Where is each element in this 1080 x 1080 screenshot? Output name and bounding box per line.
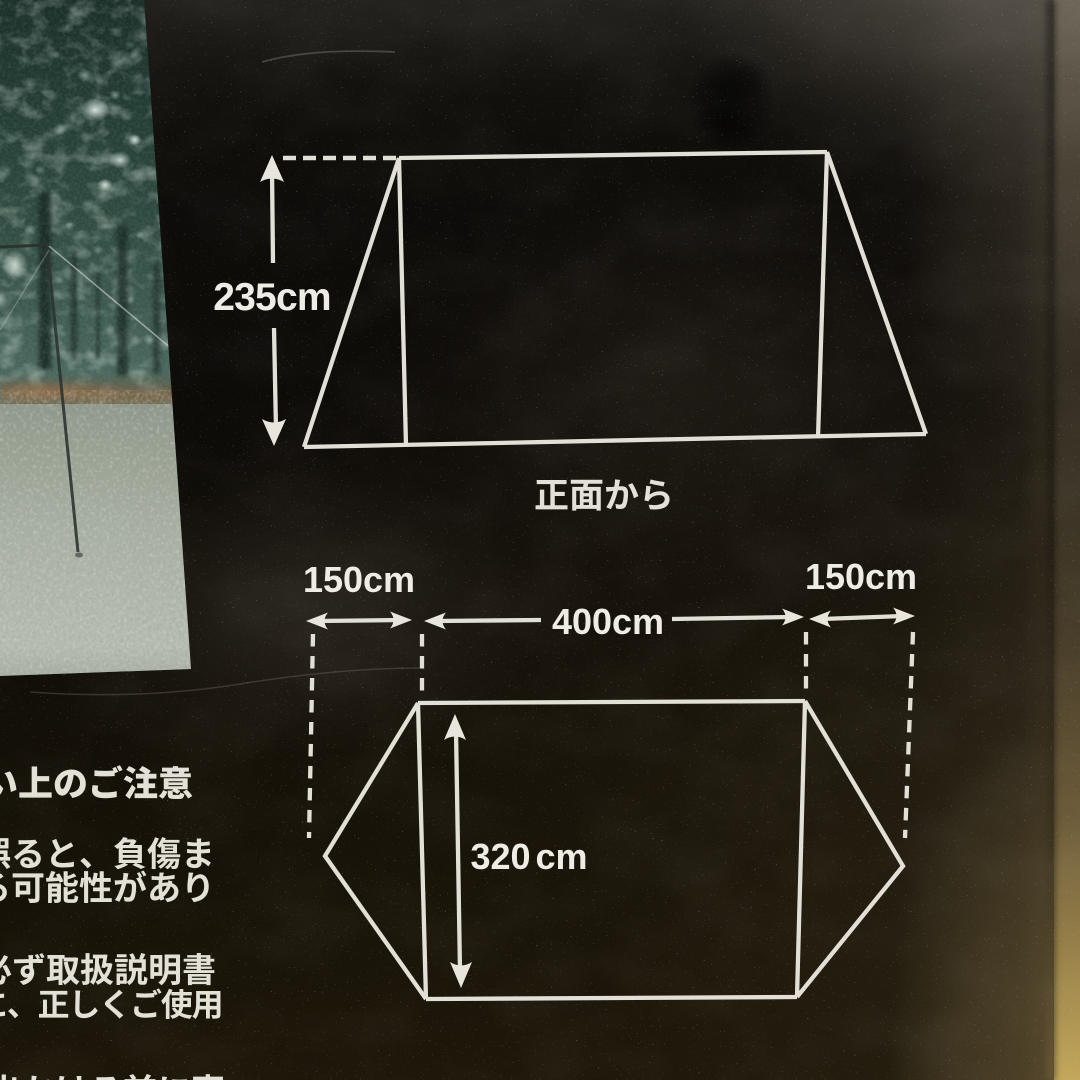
svg-text:150cm: 150cm xyxy=(805,556,917,597)
svg-text:320cm: 320cm xyxy=(470,836,587,877)
svg-text:150cm: 150cm xyxy=(303,559,415,600)
svg-text:400cm: 400cm xyxy=(552,601,664,642)
svg-text:235cm: 235cm xyxy=(213,276,330,319)
